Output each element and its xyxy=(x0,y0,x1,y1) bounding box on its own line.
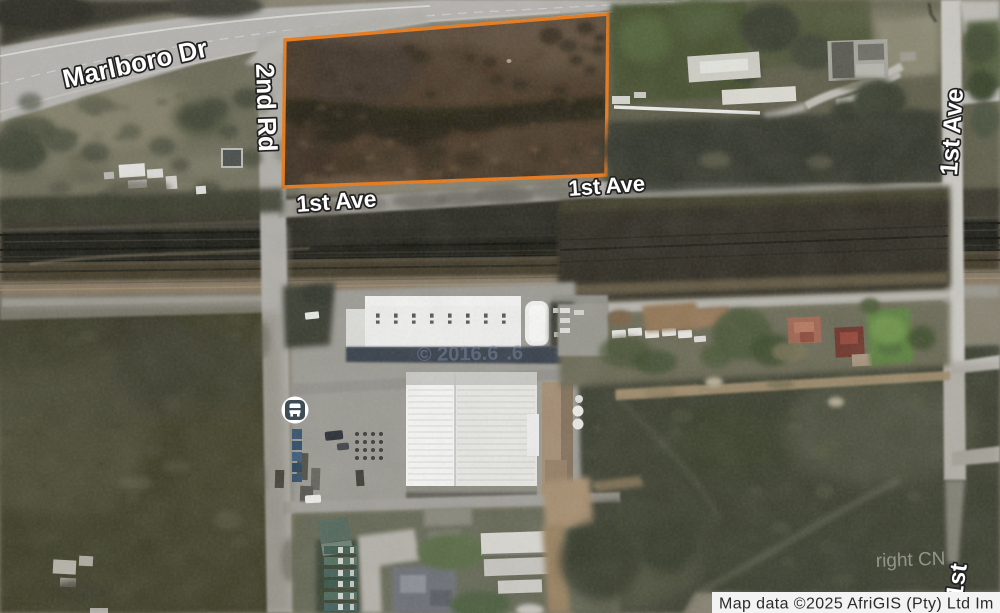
svg-text:1st Ave: 1st Ave xyxy=(568,171,646,201)
svg-text:2nd Rd: 2nd Rd xyxy=(250,63,283,152)
svg-text:right CN: right CN xyxy=(875,549,945,572)
svg-text:© 2016.6 .6: © 2016.6 .6 xyxy=(417,342,524,366)
svg-text:Map data ©2025 AfriGIS (Pty) L: Map data ©2025 AfriGIS (Pty) Ltd Im xyxy=(719,596,994,613)
